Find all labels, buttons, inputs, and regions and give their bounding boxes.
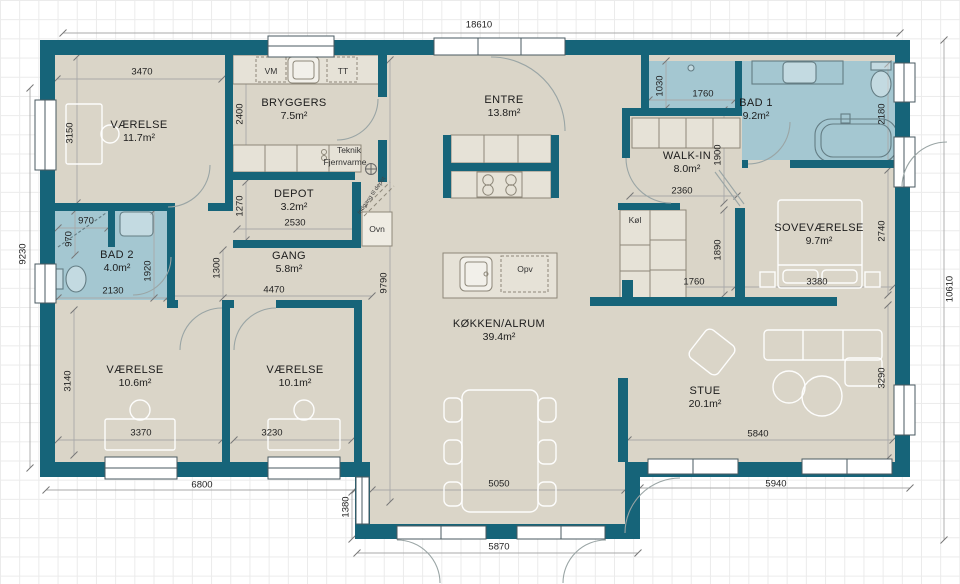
bad1-sink: [783, 62, 816, 83]
bad1-toilet: [871, 62, 891, 70]
oven-box: [362, 212, 392, 246]
floor-plan-drawing: [0, 0, 960, 584]
floor-plan: VÆRELSE11.7m² BRYGGERS7.5m² DEPOT3.2m² B…: [0, 0, 960, 584]
tall-units: [650, 210, 686, 298]
kitchen-upper-cabinets: [451, 135, 551, 163]
bump-right-door-swing: [563, 540, 606, 583]
window-entre: [434, 38, 565, 55]
kitchen-counter: [451, 171, 551, 198]
shower-head: [688, 65, 694, 71]
bump-left-door-swing: [397, 540, 440, 583]
bad2-toilet: [56, 269, 63, 289]
bad2-sink: [120, 212, 153, 236]
